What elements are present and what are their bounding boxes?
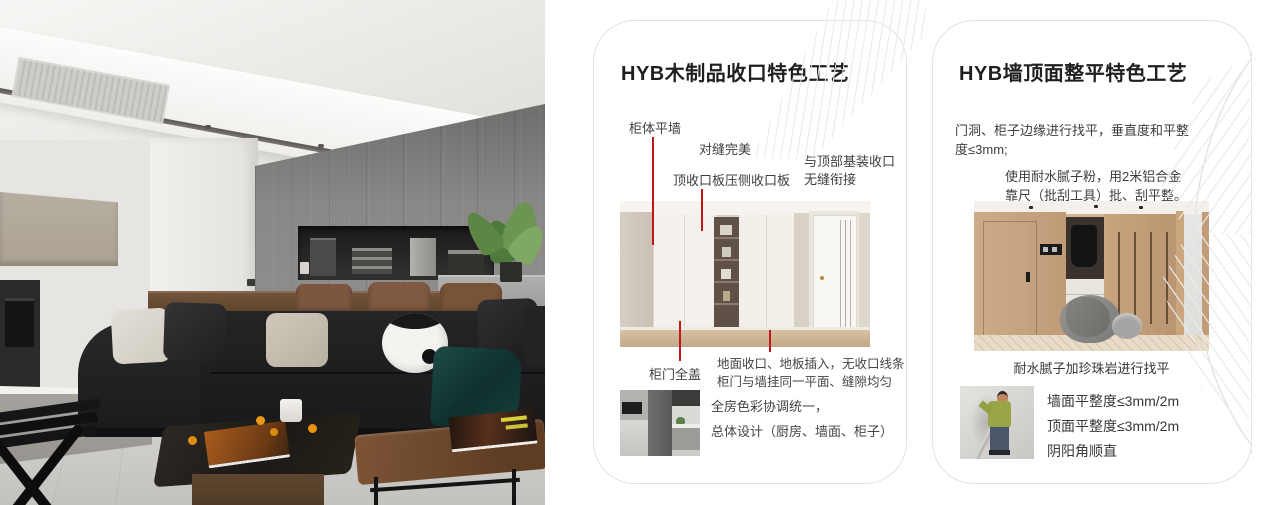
img2-intercom-panel [1040, 244, 1062, 255]
kumquat-fruit [270, 428, 278, 436]
summary-overall-design: 总体设计（厨房、墙面、柜子） [711, 421, 893, 440]
img1-door-seam [766, 215, 767, 333]
wood-coffee-table [352, 425, 545, 505]
thumb1-tv [622, 402, 642, 414]
plant-pot [500, 262, 522, 282]
img1-shelf [714, 237, 739, 239]
img2-pouf [1112, 313, 1142, 339]
img2-spot [1094, 205, 1098, 208]
img1-cabinet-a [653, 215, 716, 333]
callout-cabinet-wall: 柜体平墙 [629, 118, 681, 137]
strap-bench [0, 400, 107, 505]
img1-right-wall [859, 213, 870, 333]
img1-decor [720, 225, 732, 235]
pillow-black [524, 306, 545, 366]
img1-shelf [714, 281, 739, 283]
magazine-title-marks [506, 423, 528, 429]
thumb2-worker-pants [990, 427, 1009, 451]
img1-door-leaf [813, 215, 857, 335]
callout-seam: 对缝完美 [699, 139, 751, 158]
thumb1-plant [676, 417, 685, 424]
cup-rack-icon [352, 248, 392, 274]
callout-line [701, 189, 703, 231]
thumb1-kitchen-upper [672, 390, 700, 406]
callout-line [679, 321, 681, 361]
img1-left-wall [620, 212, 654, 333]
pillow-beige [266, 313, 328, 367]
img2-door-handle [1026, 272, 1030, 282]
ceiling-spotlight [318, 144, 324, 148]
interior-thumb-image [620, 390, 700, 456]
panda-ears-band [382, 313, 448, 329]
coffee-machine-icon [5, 298, 34, 347]
note-flush-wall: 柜门与墙挂同一平面、缝隙均匀 [717, 371, 892, 390]
img1-decor [721, 269, 731, 279]
callout-line [769, 330, 771, 352]
thumb2-worker-shoes [989, 450, 1010, 455]
pillow-cream [111, 308, 172, 365]
img1-door-knob [820, 276, 824, 280]
chrome-machine-icon [410, 238, 436, 276]
img2-intercom-btn [1052, 247, 1057, 252]
para-leveling-cont: 度≤3mm; [955, 140, 1008, 159]
callout-top-join: 无缝衔接 [804, 169, 856, 188]
img1-door-slat [840, 220, 841, 328]
img1-door-slat [845, 220, 846, 328]
spec-corners: 阴阳角顺直 [1047, 439, 1117, 464]
worker-thumb-image [960, 386, 1034, 459]
thumb1-floor [620, 420, 650, 456]
img1-door-seam [684, 215, 685, 333]
img1-shelf [714, 303, 739, 305]
stone-table-base [192, 474, 324, 505]
ceiling-spotlight [205, 125, 211, 129]
magazine-title-marks [501, 415, 527, 422]
plant [452, 180, 545, 280]
thumb2-worker-shirt [988, 401, 1011, 428]
table-metal-leg [512, 469, 516, 505]
thumb1-base-cab [672, 428, 700, 450]
summary-color-harmony: 全房色彩协调统一， [711, 396, 828, 415]
living-room-photo [0, 0, 545, 505]
pillow-black [163, 302, 227, 362]
img1-interior-door [809, 211, 859, 333]
cabinet-render-image [620, 201, 870, 347]
thumb1-floor2 [672, 450, 700, 456]
espresso-machine-icon [310, 238, 336, 276]
callout-line [652, 137, 654, 245]
img2-left-slab [974, 212, 1066, 340]
mug-icon [300, 262, 309, 274]
img1-shelf [714, 259, 739, 261]
img2-intercom-btn [1043, 247, 1048, 252]
img1-shelf-niche [714, 217, 739, 333]
white-mug [280, 399, 302, 422]
stone-coffee-table [158, 412, 358, 505]
img2-spot [1139, 206, 1143, 209]
img2-hanging-clothes [1071, 225, 1097, 267]
kumquat-fruit [308, 424, 317, 433]
img1-wall-strip [794, 213, 809, 333]
img1-wood-floor [620, 330, 870, 347]
thumb1-column [648, 390, 674, 456]
note-floor-finish: 地面收口、地板插入，无收口线条 [717, 353, 905, 372]
img1-decor [722, 247, 731, 257]
kitchen-upper-cabinet [0, 192, 118, 266]
kumquat-fruit [256, 416, 265, 425]
img2-groove [1134, 232, 1136, 324]
img2-spot [1029, 206, 1033, 209]
callout-full-cover: 柜门全盖 [649, 364, 701, 383]
kitchen-tall-appliance-column [0, 280, 40, 396]
callout-top-board: 顶收口板压侧收口板 [673, 170, 790, 189]
page: HYB木制品收口特色工艺 柜体平墙 对缝完美 顶收口板压侧收口板 与顶部基装收口… [0, 0, 1280, 505]
img2-blanket [1066, 297, 1110, 337]
kumquat-fruit [188, 436, 197, 445]
img1-door-slat [850, 220, 851, 328]
img1-cabinet-b [739, 215, 794, 333]
img1-decor [723, 291, 730, 301]
table-metal-leg [374, 477, 378, 505]
